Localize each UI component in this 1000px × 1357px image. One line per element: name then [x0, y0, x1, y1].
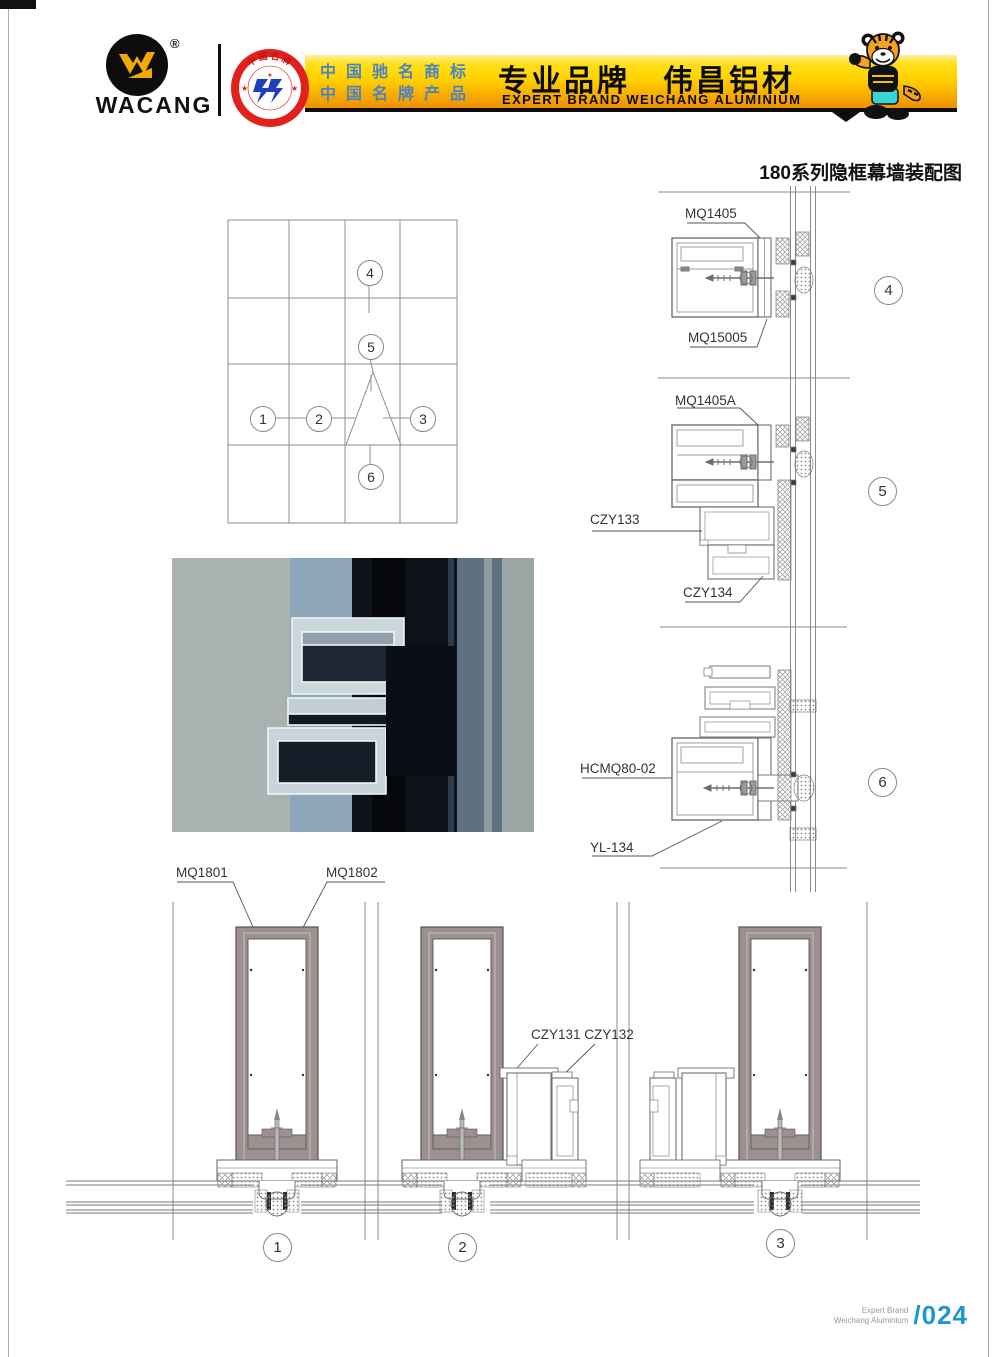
wacang-w-icon: [106, 34, 168, 96]
detail-1-drawing: [217, 927, 337, 1216]
corner-mark: [0, 0, 36, 9]
label-yl-134: YL-134: [590, 840, 634, 855]
label-hcmq80-02: HCMQ80-02: [580, 761, 656, 776]
tiger-mascot-icon: [846, 28, 926, 122]
detail-callout-3: 3: [766, 1229, 795, 1258]
vertical-details-drawing: [560, 172, 1000, 912]
page-border-left: [8, 0, 9, 1357]
label-mq1405a: MQ1405A: [675, 393, 736, 408]
label-czy134: CZY134: [683, 585, 733, 600]
detail-callout-5: 5: [868, 477, 897, 506]
elevation-callout-5: 5: [358, 334, 384, 360]
catalog-page: ® WACANG 中国驰名商标 中国名牌产品 专业品牌 伟昌铝材 EXPERT …: [0, 0, 1000, 1357]
header-divider: [218, 44, 221, 116]
elevation-grid-drawing: [225, 215, 460, 530]
badge-star-right-icon: ★: [291, 84, 298, 93]
label-czy131-czy132: CZY131 CZY132: [531, 1027, 634, 1042]
page-number: /024: [913, 1300, 968, 1331]
registered-mark: ®: [170, 36, 180, 51]
china-top-brand-badge: 中国名牌 CHINA TOP BRAND ★ ★ ★: [230, 48, 310, 128]
elevation-callout-6: 6: [358, 464, 384, 490]
detail-2-drawing: [402, 927, 586, 1216]
detail-callout-4: 4: [874, 276, 903, 305]
detail-callout-6: 6: [868, 768, 897, 797]
badge-star-left-icon: ★: [241, 84, 248, 93]
elevation-callout-1: 1: [250, 406, 276, 432]
label-mq1405: MQ1405: [685, 206, 737, 221]
profile-photo: [172, 558, 534, 832]
badge-star-top-icon: ★: [267, 72, 272, 79]
footer-brand-text: Expert Brand Weichang Aluminium: [834, 1306, 909, 1326]
elevation-callout-4: 4: [357, 260, 383, 286]
detail-5-drawing: [592, 408, 813, 602]
detail-3-drawing: [640, 927, 840, 1216]
label-mq1802: MQ1802: [326, 865, 378, 880]
detail-4-drawing: [672, 223, 813, 347]
footer-brand-line2: Weichang Aluminium: [834, 1316, 909, 1326]
label-mq15005: MQ15005: [688, 330, 747, 345]
label-czy133: CZY133: [590, 512, 640, 527]
footer: Expert Brand Weichang Aluminium /024: [828, 1300, 968, 1331]
detail-callout-1: 1: [263, 1233, 292, 1262]
logo-wordmark: WACANG: [88, 92, 220, 119]
banner-tagline-2: 中国名牌产品: [320, 80, 490, 104]
brand-english: EXPERT BRAND WEICHANG ALUMINIUM: [502, 92, 801, 107]
label-mq1801: MQ1801: [176, 865, 228, 880]
elevation-callout-3: 3: [410, 406, 436, 432]
detail-callout-2: 2: [448, 1233, 477, 1262]
elevation-callout-2: 2: [306, 406, 332, 432]
horizontal-details-drawing: [60, 860, 960, 1290]
wacang-logo-icon: [106, 34, 168, 96]
footer-brand-line1: Expert Brand: [834, 1306, 909, 1316]
banner-tagline-1: 中国驰名商标: [320, 58, 490, 82]
